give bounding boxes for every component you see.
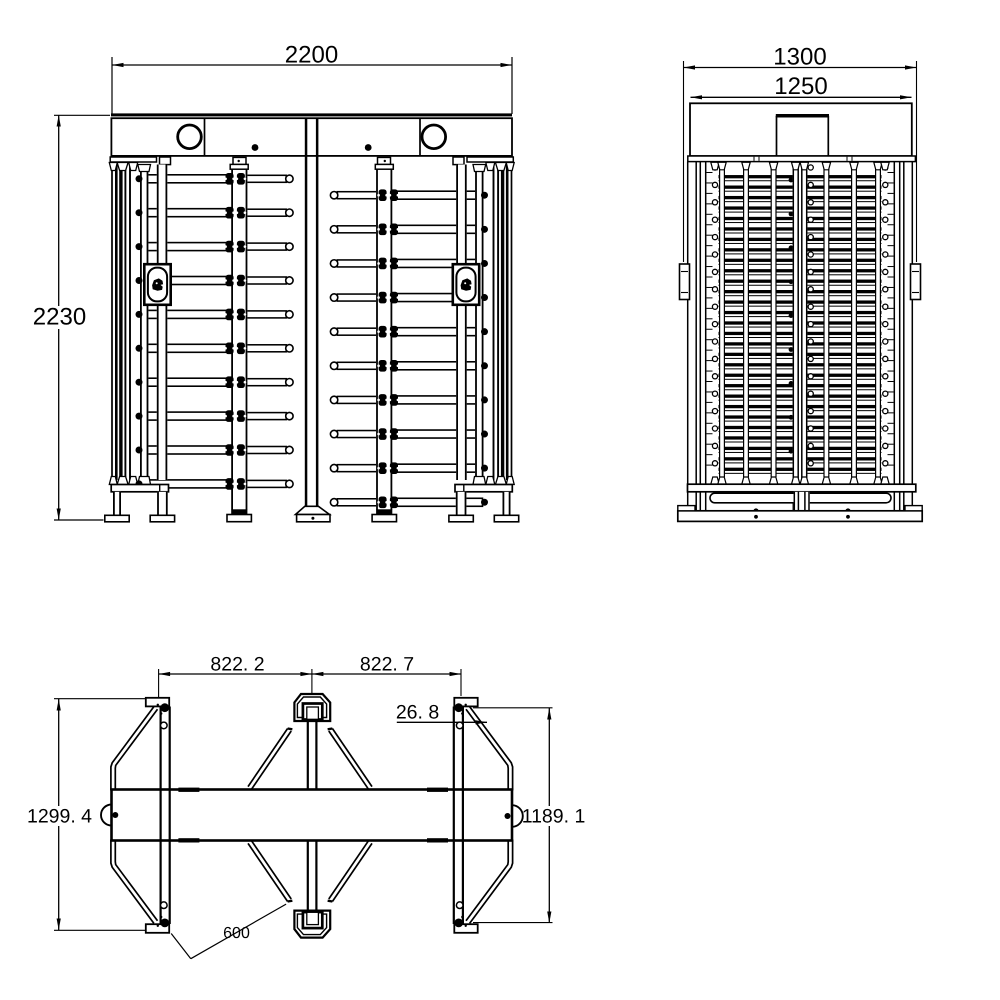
- svg-text:822. 2: 822. 2: [210, 653, 264, 675]
- svg-text:1299. 4: 1299. 4: [27, 806, 92, 828]
- svg-text:600: 600: [223, 925, 250, 942]
- svg-text:2200: 2200: [285, 42, 338, 69]
- svg-text:822. 7: 822. 7: [360, 653, 414, 675]
- svg-text:1300: 1300: [773, 44, 826, 71]
- svg-text:26. 8: 26. 8: [396, 702, 439, 724]
- svg-text:2230: 2230: [33, 304, 86, 331]
- svg-text:1189. 1: 1189. 1: [522, 806, 586, 828]
- svg-text:1250: 1250: [774, 73, 827, 100]
